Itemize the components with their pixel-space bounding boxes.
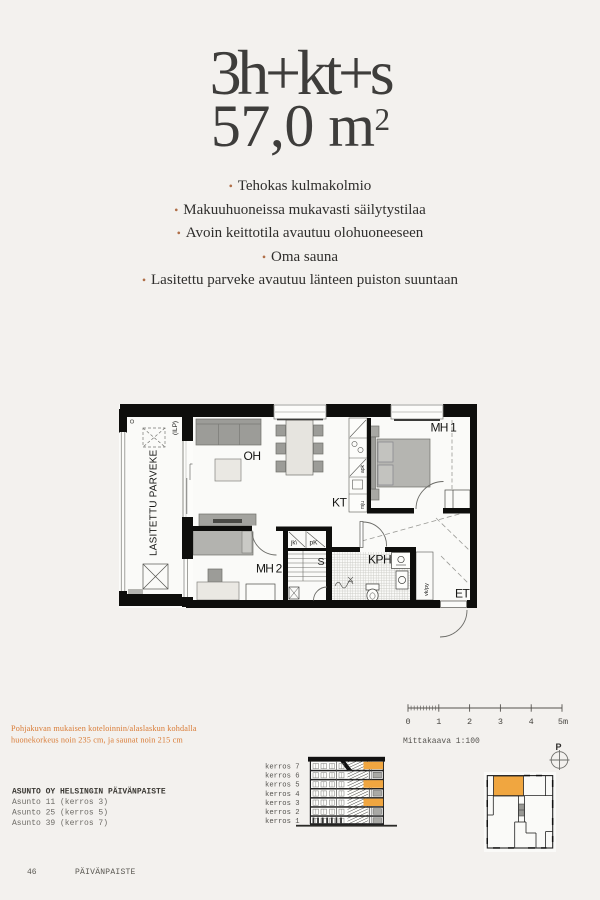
svg-text:P: P	[556, 742, 562, 752]
svg-text:ASUNTO OY HELSINGIN PÄIVÄNPAIS: ASUNTO OY HELSINGIN PÄIVÄNPAISTE	[12, 788, 166, 797]
svg-text:1: 1	[436, 717, 441, 727]
svg-text:vk/py: vk/py	[424, 583, 430, 596]
svg-text:Mittakaava 1:100: Mittakaava 1:100	[403, 737, 480, 746]
svg-text:LASITETTU PARVEKE: LASITETTU PARVEKE	[149, 449, 160, 556]
svg-text:huonekorkeus noin 235 cm, ja s: huonekorkeus noin 235 cm, ja saunat noin…	[11, 736, 183, 745]
svg-text:MH 2: MH 2	[256, 562, 283, 576]
svg-text:5m: 5m	[558, 717, 568, 727]
svg-text:KT: KT	[332, 496, 348, 510]
svg-text:kerros 1: kerros 1	[265, 818, 300, 826]
svg-text:kerros 4: kerros 4	[265, 791, 300, 799]
svg-text:Asunto 25 (kerros 5): Asunto 25 (kerros 5)	[12, 809, 108, 818]
svg-text:3: 3	[498, 717, 503, 727]
svg-text:kerros 7: kerros 7	[265, 763, 300, 771]
svg-text:apk: apk	[360, 464, 366, 473]
svg-text:ET: ET	[455, 587, 471, 601]
svg-text:KPH: KPH	[368, 553, 391, 567]
svg-text:kerros 6: kerros 6	[265, 772, 300, 780]
svg-text:pK: pK	[310, 540, 319, 547]
svg-text:4: 4	[529, 717, 534, 727]
svg-text:2: 2	[467, 717, 472, 727]
svg-text:(ILP): (ILP)	[172, 421, 179, 435]
svg-text:Pohjakuvan mukaisen koteloinni: Pohjakuvan mukaisen koteloinnin/alaslask…	[11, 724, 197, 733]
svg-text:OH: OH	[244, 449, 261, 463]
svg-text:kerros 2: kerros 2	[265, 809, 300, 817]
svg-text:46: 46	[27, 868, 37, 877]
svg-text:mju: mju	[360, 501, 366, 509]
svg-text:S: S	[318, 556, 325, 568]
svg-text:MH 1: MH 1	[431, 421, 458, 435]
svg-text:PÄIVÄNPAISTE: PÄIVÄNPAISTE	[75, 868, 136, 877]
svg-text:Asunto 11 (kerros 3): Asunto 11 (kerros 3)	[12, 798, 108, 807]
svg-text:jk\: jk\	[290, 541, 297, 547]
svg-text:0: 0	[405, 717, 410, 727]
svg-text:kerros 5: kerros 5	[265, 782, 300, 790]
svg-text:Asunto 39 (kerros 7): Asunto 39 (kerros 7)	[12, 819, 108, 828]
svg-text:kerros 3: kerros 3	[265, 800, 300, 808]
